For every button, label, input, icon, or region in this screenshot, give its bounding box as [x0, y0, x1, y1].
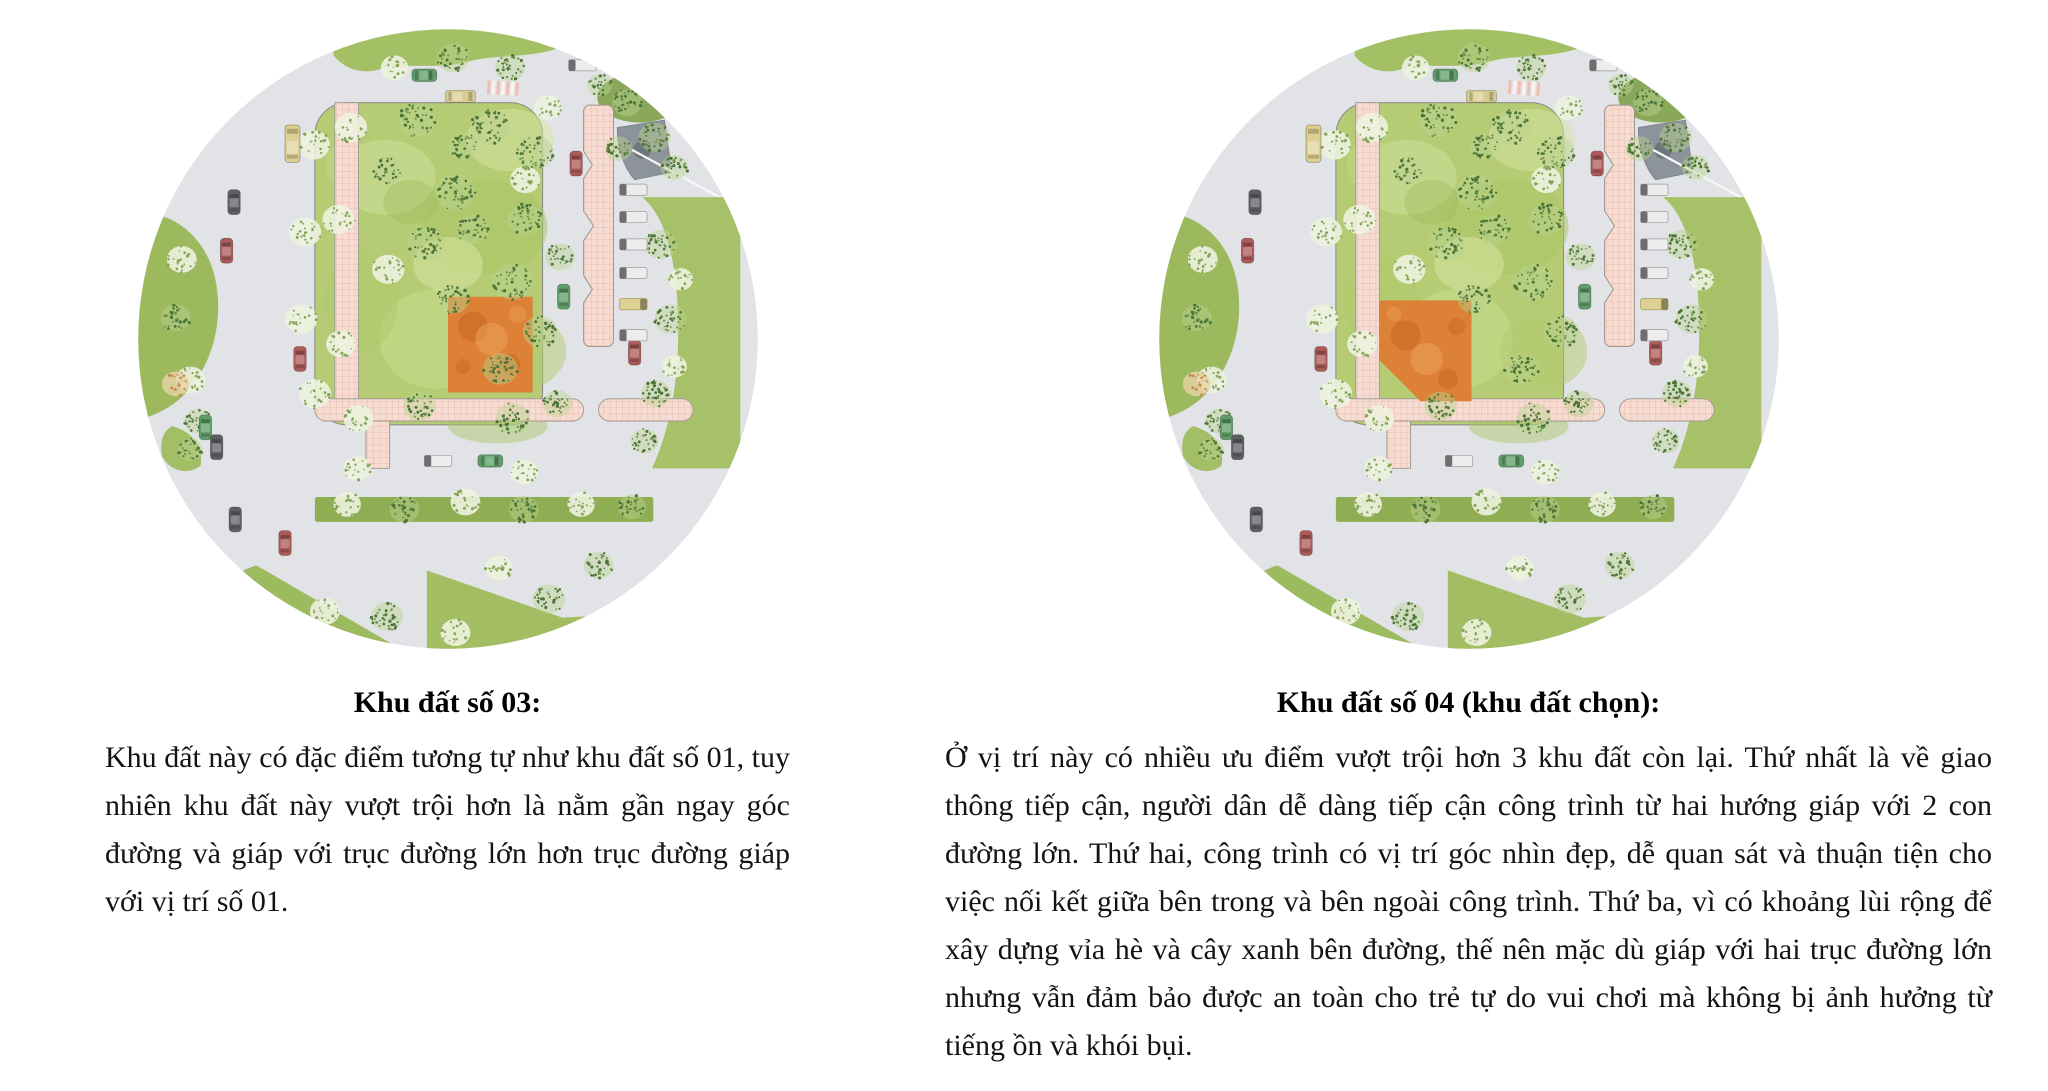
site-plan-map-04 — [1158, 28, 1780, 650]
figure-description-04: Ở vị trí này có nhiều ưu điểm vượt trội … — [945, 734, 1992, 1070]
site-plan-map-03 — [137, 28, 759, 650]
section-plot-03: Khu đất số 03: Khu đất này có đặc điểm t… — [105, 28, 790, 926]
document-page: Khu đất số 03: Khu đất này có đặc điểm t… — [0, 0, 2048, 1091]
figure-caption-03: Khu đất số 03: — [105, 686, 790, 720]
figure-description-03: Khu đất này có đặc điểm tương tự như khu… — [105, 734, 790, 926]
figure-caption-04: Khu đất số 04 (khu đất chọn): — [945, 686, 1992, 720]
section-plot-04: Khu đất số 04 (khu đất chọn): Ở vị trí n… — [945, 28, 1992, 1070]
